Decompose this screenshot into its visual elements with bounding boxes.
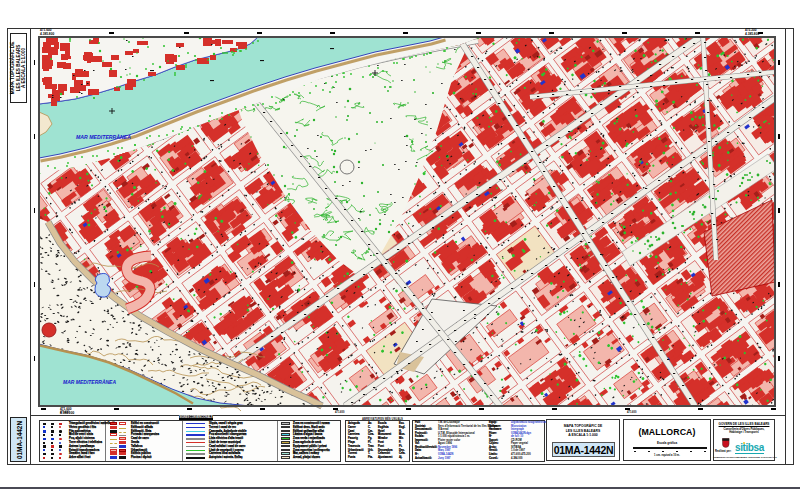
svg-text:MAR MEDITERRÀNEA: MAR MEDITERRÀNEA [76,134,131,140]
svg-text:MAR MEDITERRÀNEA: MAR MEDITERRÀNEA [63,379,116,385]
